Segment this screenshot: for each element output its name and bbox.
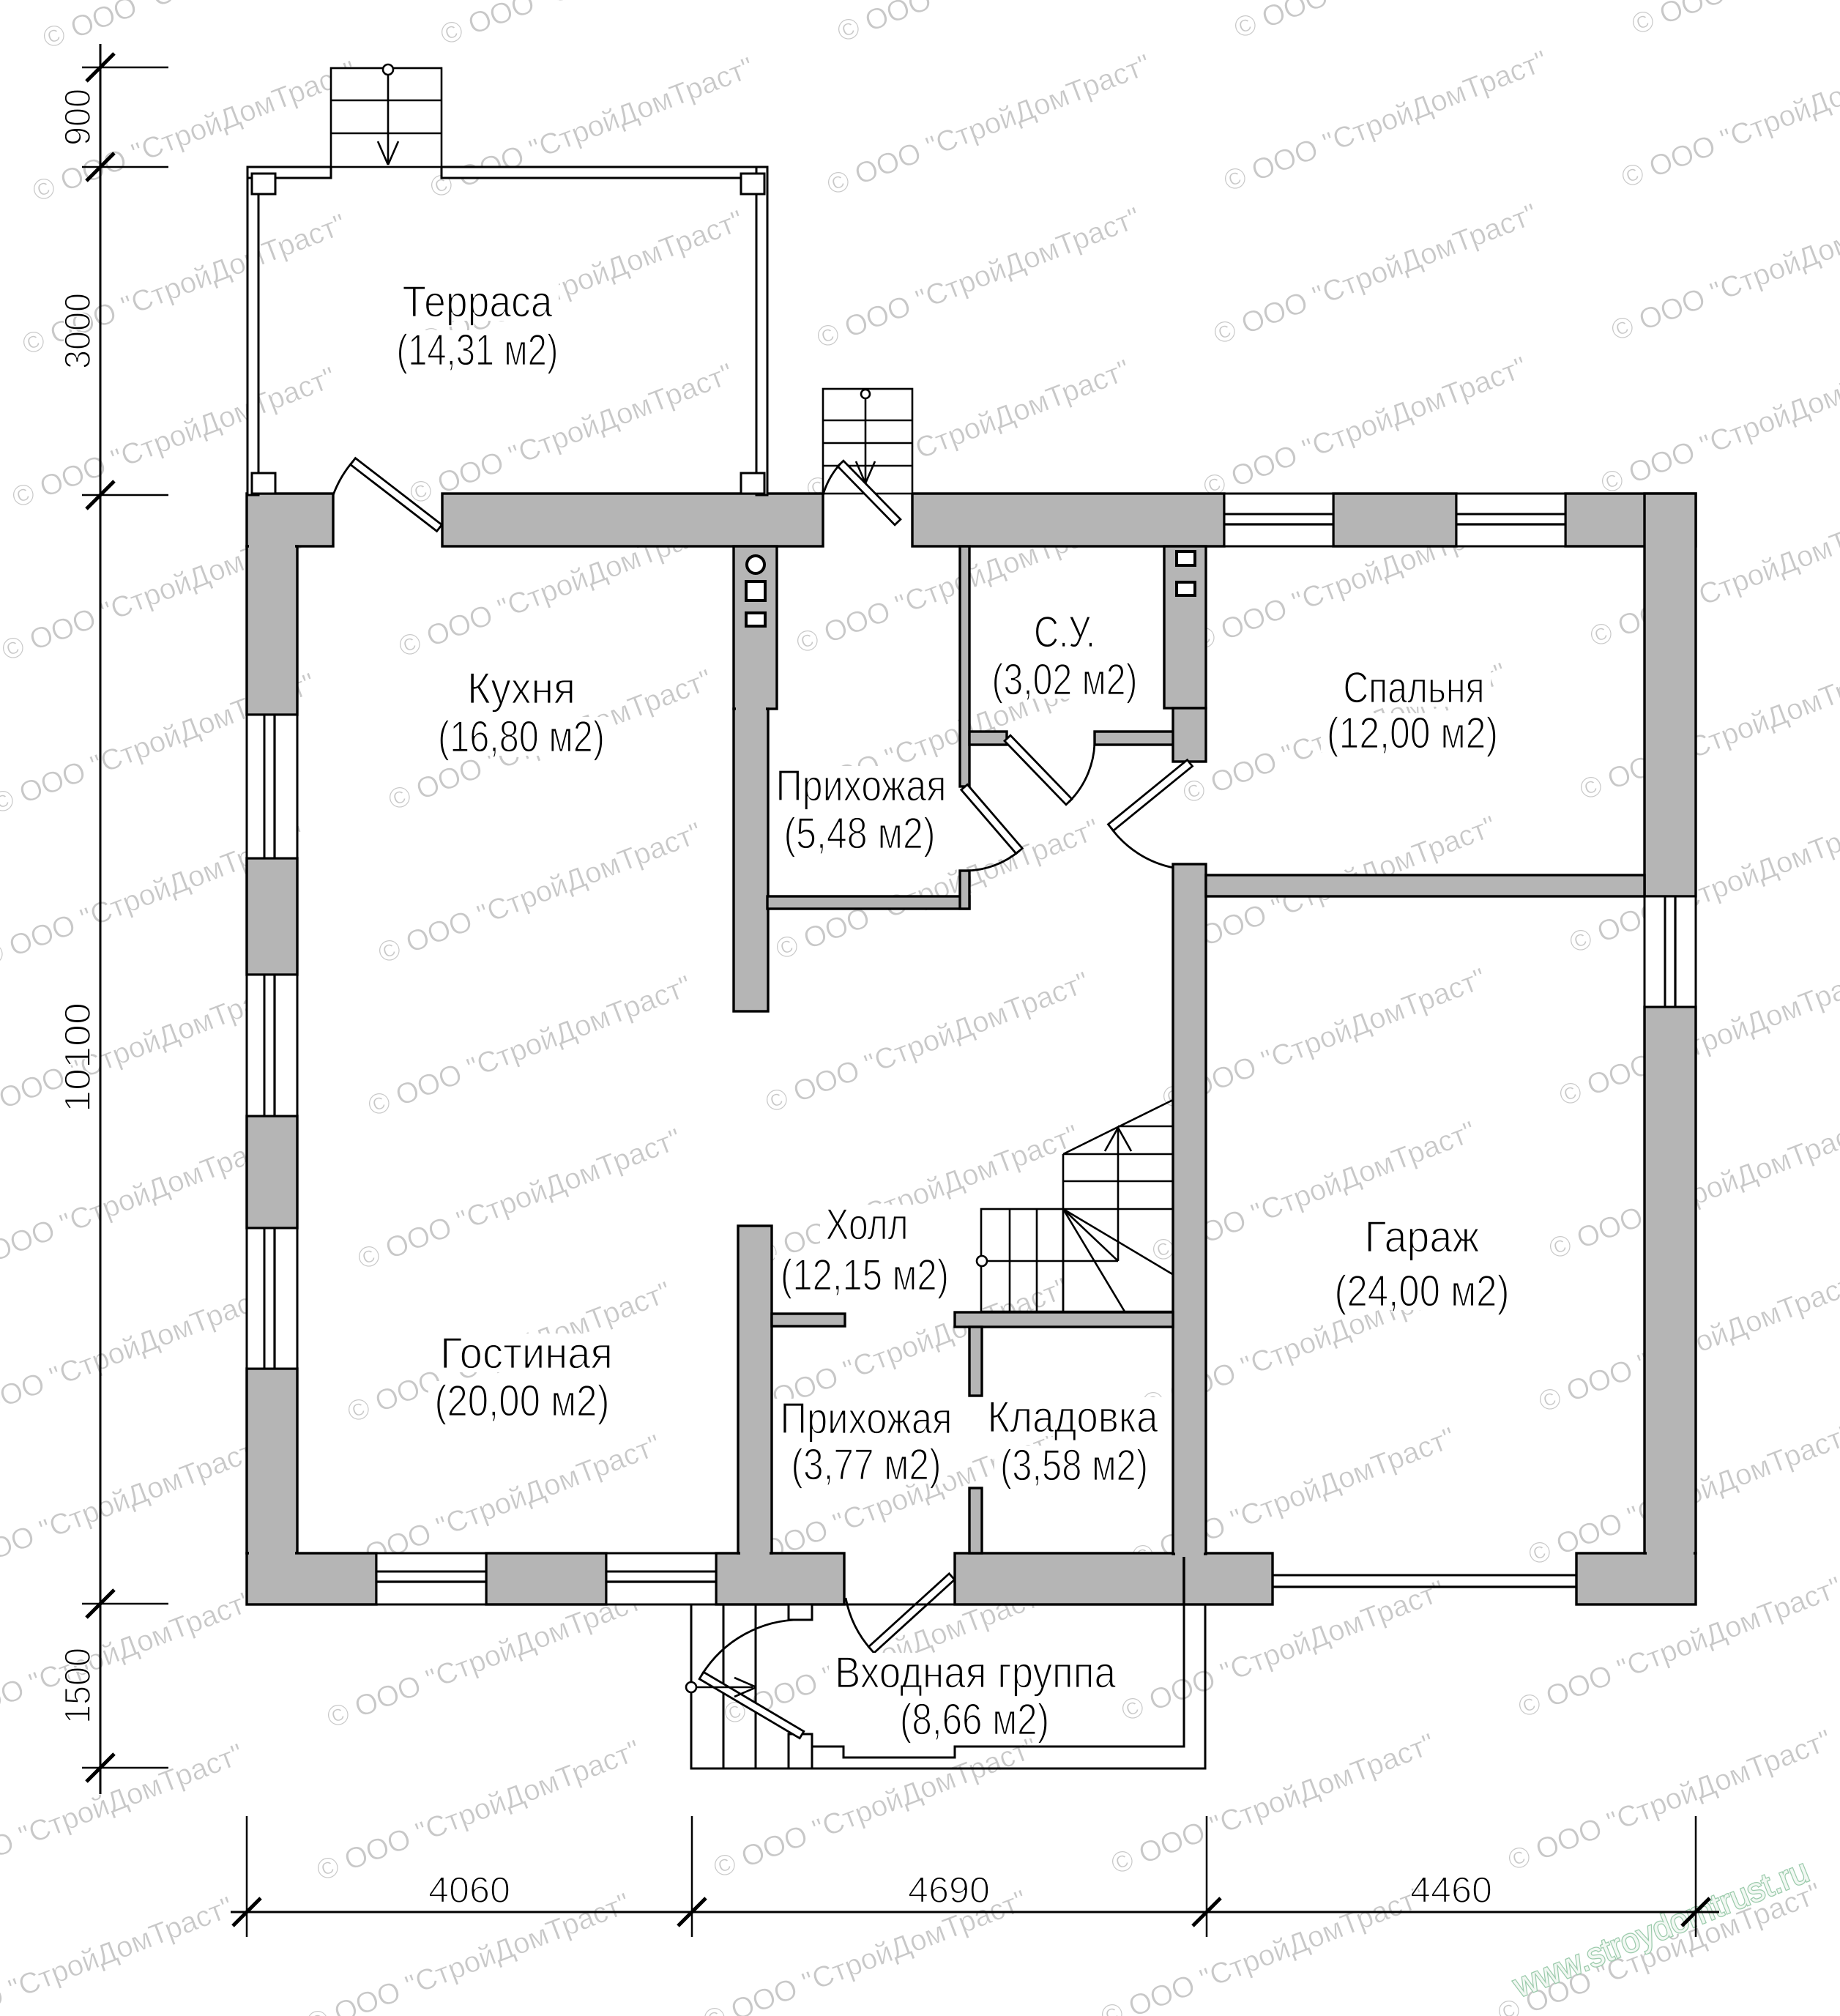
svg-text:1500: 1500	[57, 1648, 98, 1724]
svg-text:900: 900	[57, 89, 98, 146]
svg-text:Гостиная: Гостиная	[440, 1328, 613, 1377]
svg-text:(3,77 м2): (3,77 м2)	[792, 1440, 942, 1489]
svg-text:(14,31 м2): (14,31 м2)	[397, 325, 559, 374]
svg-text:(24,00 м2): (24,00 м2)	[1335, 1266, 1510, 1315]
svg-text:Холл: Холл	[826, 1199, 909, 1249]
svg-text:10100: 10100	[57, 1003, 98, 1112]
svg-text:С.У.: С.У.	[1034, 607, 1095, 656]
svg-text:Кладовка: Кладовка	[988, 1392, 1159, 1441]
svg-text:4460: 4460	[1410, 1870, 1492, 1911]
svg-text:(8,66 м2): (8,66 м2)	[900, 1695, 1049, 1744]
svg-text:Терраса: Терраса	[403, 277, 554, 326]
svg-text:(3,02 м2): (3,02 м2)	[992, 655, 1138, 704]
svg-text:Входная группа: Входная группа	[835, 1648, 1117, 1697]
svg-text:(12,00 м2): (12,00 м2)	[1327, 708, 1498, 757]
svg-text:4060: 4060	[428, 1870, 510, 1911]
svg-text:Гараж: Гараж	[1365, 1212, 1480, 1261]
svg-text:(16,80 м2): (16,80 м2)	[438, 712, 605, 761]
svg-text:3000: 3000	[57, 293, 98, 369]
svg-text:4690: 4690	[908, 1870, 990, 1911]
svg-text:(5,48 м2): (5,48 м2)	[784, 808, 936, 858]
svg-text:Спальня: Спальня	[1344, 663, 1485, 712]
svg-text:Прихожая: Прихожая	[781, 1394, 953, 1443]
svg-text:(3,58 м2): (3,58 м2)	[1000, 1440, 1148, 1489]
svg-text:Прихожая: Прихожая	[776, 761, 947, 810]
svg-text:(20,00 м2): (20,00 м2)	[435, 1376, 610, 1425]
svg-text:(12,15 м2): (12,15 м2)	[781, 1250, 949, 1299]
svg-text:Кухня: Кухня	[467, 663, 576, 713]
